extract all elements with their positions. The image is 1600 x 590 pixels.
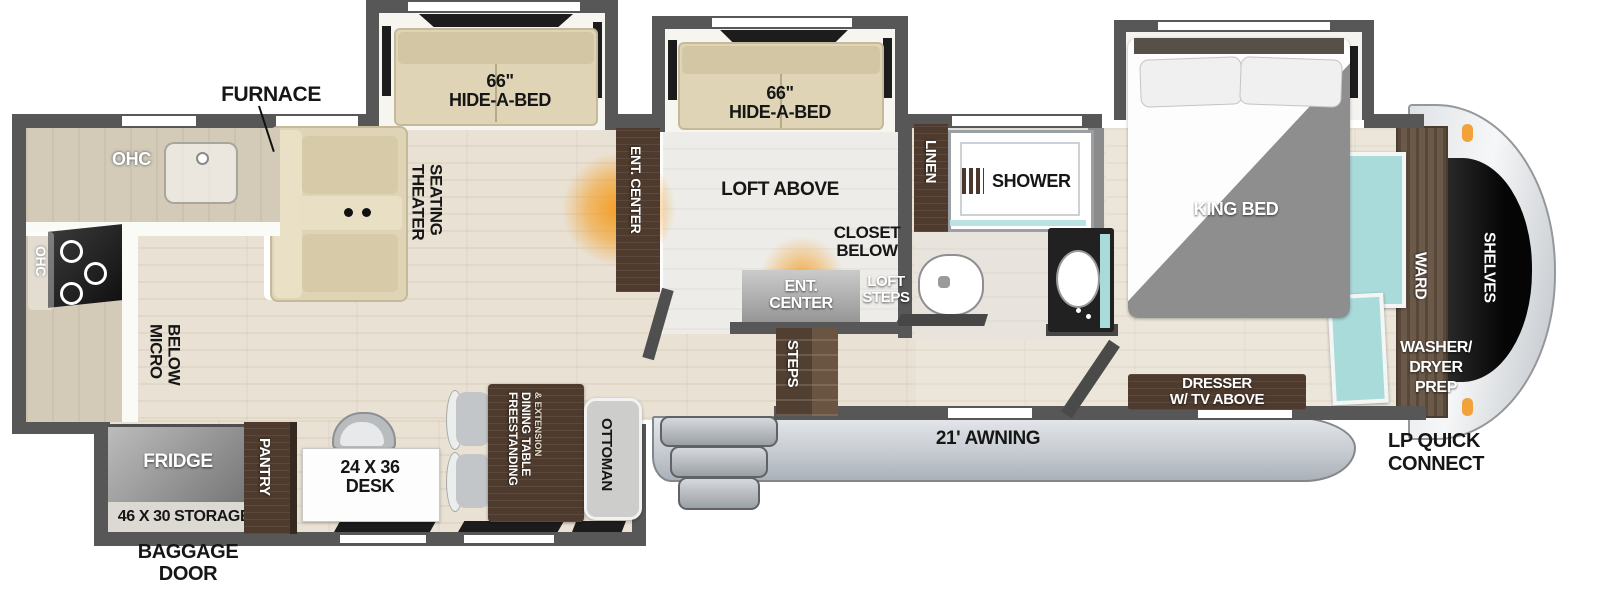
entry-step-3 <box>678 477 760 510</box>
storage-label: 46 X 30 STORAGE <box>108 508 260 525</box>
steps-label: STEPS <box>784 340 800 387</box>
burner-2 <box>84 262 107 285</box>
entry-step-2 <box>670 446 768 478</box>
theater-seat-cushion-top <box>302 136 398 194</box>
king-pillow-right <box>1239 56 1343 108</box>
kitchen-window-1 <box>122 116 196 126</box>
slide1-right-wall <box>605 0 618 130</box>
baggage-door-label: BAGGAGE DOOR <box>128 542 248 585</box>
loft-above-label: LOFT ABOVE <box>700 180 860 201</box>
kingslide-left-wall <box>1114 20 1126 120</box>
toilet-ledge <box>894 314 988 326</box>
fridge-label: FRIDGE <box>108 452 248 473</box>
slide2-side-window-right <box>883 38 892 98</box>
slide-window-shade-desk <box>334 521 436 532</box>
theater-cupholder-1 <box>344 208 353 217</box>
vanity-sink <box>1056 250 1100 308</box>
ohc-rear-label: OHC <box>112 150 151 169</box>
kitchen-faucet <box>196 152 209 165</box>
dining-chair-1-seat <box>456 392 490 446</box>
shower-label: SHOWER <box>992 172 1071 191</box>
ent-center-cabinet-label: ENT. CENTER <box>742 278 860 313</box>
desk-label: 24 X 36 DESK <box>302 458 438 497</box>
vanity-mirror <box>1100 234 1110 328</box>
front-marker-light-top <box>1462 124 1473 142</box>
ohc-side-label: OHC <box>33 246 48 276</box>
door-slide-left-wall <box>94 424 108 546</box>
front-marker-light-bottom <box>1462 398 1473 416</box>
kitchen-counter-side-edge <box>122 236 138 422</box>
ward-label: WARD <box>1411 252 1428 299</box>
bath-window <box>952 116 1082 126</box>
slide1-side-window-left <box>382 26 391 96</box>
burner-3 <box>60 282 83 305</box>
shelves-label: SHELVES <box>1480 232 1497 303</box>
kingslide-right-wall <box>1362 20 1374 120</box>
slide-window-shade-ottoman <box>572 521 626 532</box>
slide-window-2 <box>464 535 554 543</box>
king-bed-label: KING BED <box>1156 200 1316 219</box>
washer-dryer-label: WASHER/ DRYER PREP <box>1384 338 1488 398</box>
slide2-top-window <box>712 18 852 27</box>
shower-glass-edge <box>950 220 1086 226</box>
dining-chair-2-seat <box>456 454 490 508</box>
slide2-sofa-back <box>682 46 880 74</box>
linen-label: LINEN <box>922 140 938 183</box>
slide-window-shade-dining <box>458 521 564 532</box>
slide1-top-window <box>408 2 580 11</box>
slide2-right-wall <box>895 16 908 132</box>
theater-seat-cushion-bottom <box>302 234 398 292</box>
slide1-window-glass <box>414 14 578 27</box>
kitchen-counter-rear <box>26 128 280 222</box>
micro-below-label: MICRO BELOW <box>146 324 183 385</box>
slide2-left-wall <box>652 16 665 132</box>
lp-quick-connect-label: LP QUICK CONNECT <box>1388 430 1484 476</box>
slide-window-1 <box>340 535 426 543</box>
bottom-wall-main <box>774 406 1426 420</box>
vanity-faucet2 <box>1086 314 1091 319</box>
burner-1 <box>60 240 83 263</box>
mirror-door-upper <box>1346 152 1406 308</box>
loft-steps-label: LOFT STEPS <box>852 274 920 306</box>
floorplan: 21' AWNING SHELVES WARD WASHER/ DRYER PR… <box>0 0 1600 590</box>
cooktop <box>48 224 122 308</box>
interior-steps-rail <box>812 328 838 416</box>
closet-below-label: CLOSET BELOW <box>818 224 916 261</box>
ottoman-label: OTTOMAN <box>598 418 614 491</box>
kingslide-top-window <box>1158 22 1330 30</box>
slide1-sofa-back <box>398 32 594 64</box>
bottom-window-1 <box>948 408 1032 418</box>
slide2-window-glass <box>716 30 852 42</box>
furnace-label: FURNACE <box>219 84 323 107</box>
theater-seating-label: THEATER SEATING <box>408 164 445 240</box>
king-bed-headboard <box>1134 38 1344 54</box>
dining-table-label: FREESTANDING DINING TABLE & EXTENSION <box>506 392 542 486</box>
theater-cupholder-2 <box>362 208 371 217</box>
toilet-flush <box>938 276 950 288</box>
slide2-side-window-left <box>668 40 677 100</box>
entry-step-1 <box>660 416 778 447</box>
awning-label: 21' AWNING <box>908 429 1068 450</box>
slide1-left-wall <box>366 0 379 130</box>
ent-center-wall-label: ENT. CENTER <box>628 146 643 233</box>
slide1-label: 66" HIDE-A-BED <box>420 72 580 111</box>
dresser-label: DRESSER W/ TV ABOVE <box>1128 376 1306 408</box>
pantry-label: PANTRY <box>256 438 272 496</box>
shower-head-icon <box>962 168 984 194</box>
kitchen-window-2 <box>276 116 358 126</box>
king-pillow-left <box>1139 56 1243 108</box>
vanity-faucet <box>1076 308 1081 313</box>
rear-wall <box>12 114 26 434</box>
toilet <box>918 254 984 316</box>
slide2-label: 66" HIDE-A-BED <box>700 84 860 123</box>
